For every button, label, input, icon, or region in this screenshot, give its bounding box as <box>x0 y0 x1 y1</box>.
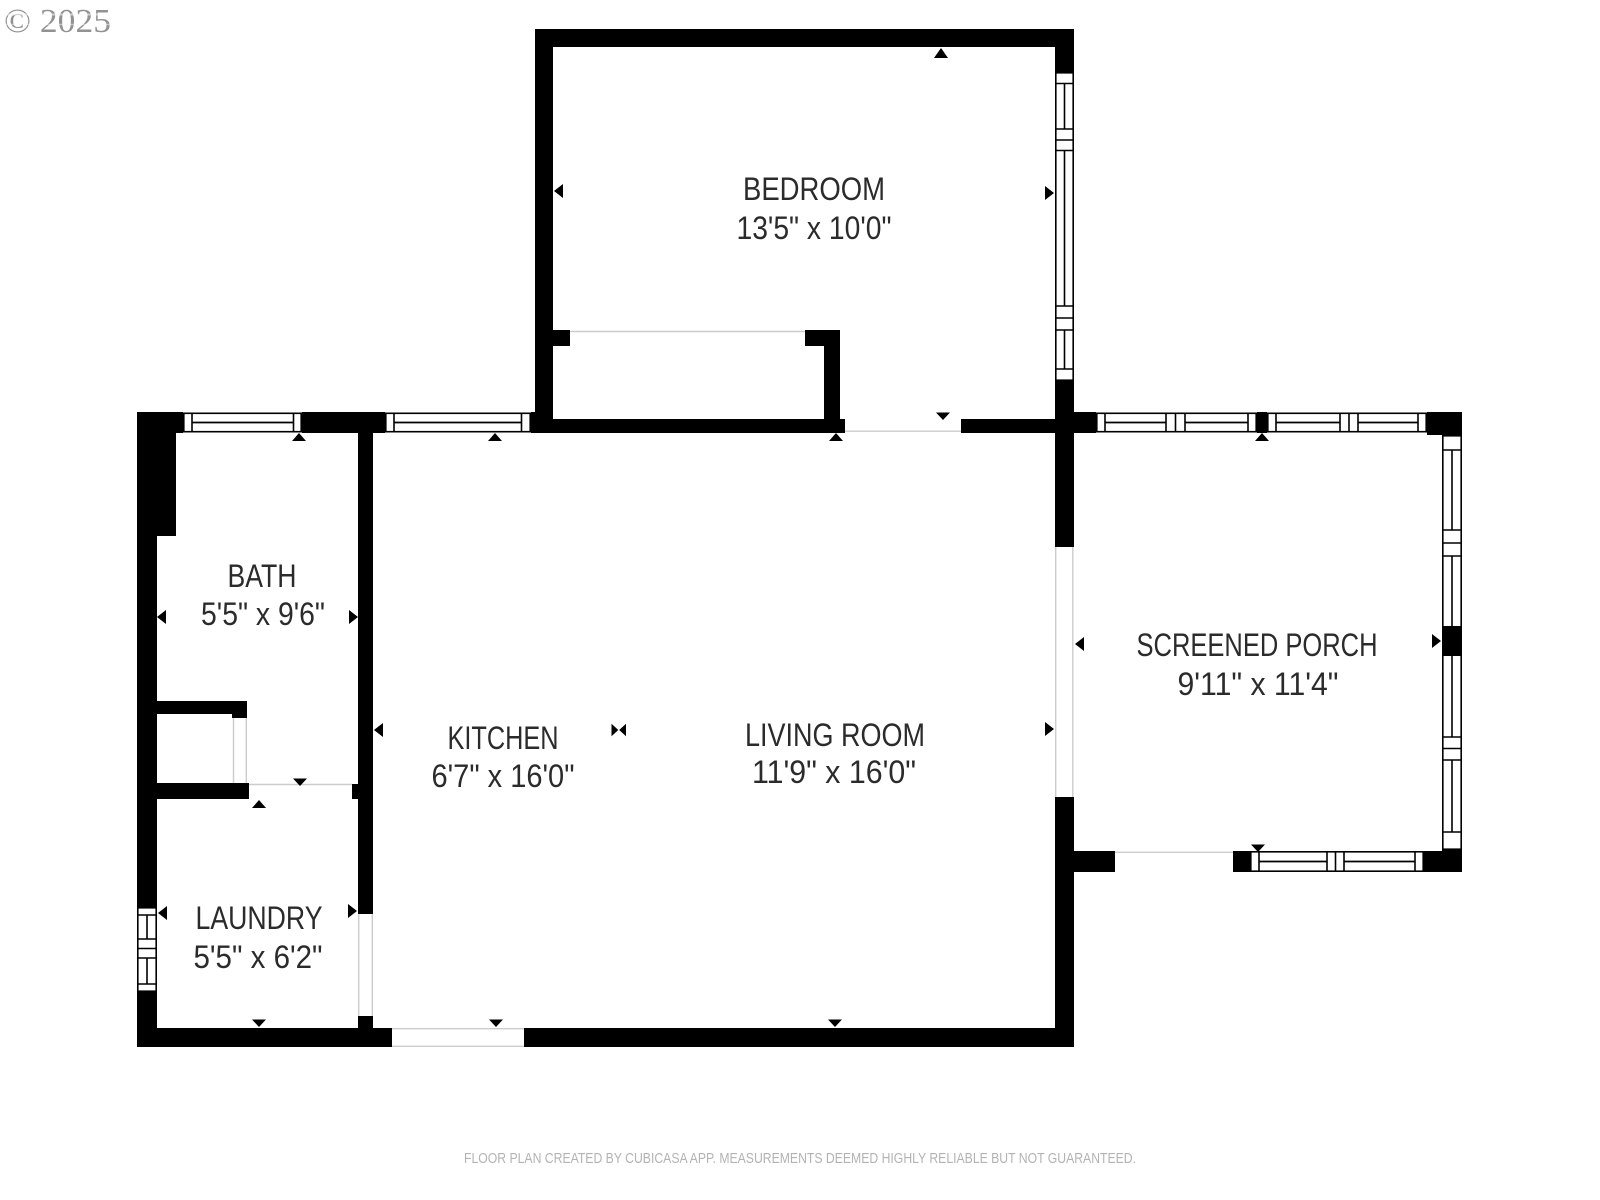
svg-text:FLOOR PLAN CREATED BY CUBICASA: FLOOR PLAN CREATED BY CUBICASA APP. MEAS… <box>464 1151 1136 1167</box>
svg-text:6'7" x 16'0": 6'7" x 16'0" <box>432 758 575 794</box>
svg-text:© 2025: © 2025 <box>4 3 111 40</box>
svg-text:9'11" x 11'4": 9'11" x 11'4" <box>1178 666 1339 702</box>
svg-text:5'5" x 9'6": 5'5" x 9'6" <box>201 596 325 632</box>
svg-text:13'5" x 10'0": 13'5" x 10'0" <box>737 210 892 246</box>
svg-text:LAUNDRY: LAUNDRY <box>196 900 323 936</box>
svg-text:BEDROOM: BEDROOM <box>743 171 885 207</box>
svg-text:BATH: BATH <box>228 558 297 594</box>
svg-text:5'5" x 6'2": 5'5" x 6'2" <box>194 939 323 975</box>
svg-text:KITCHEN: KITCHEN <box>448 720 559 756</box>
svg-text:LIVING ROOM: LIVING ROOM <box>745 717 925 753</box>
svg-text:SCREENED PORCH: SCREENED PORCH <box>1137 627 1378 663</box>
svg-text:11'9" x 16'0": 11'9" x 16'0" <box>752 754 916 790</box>
